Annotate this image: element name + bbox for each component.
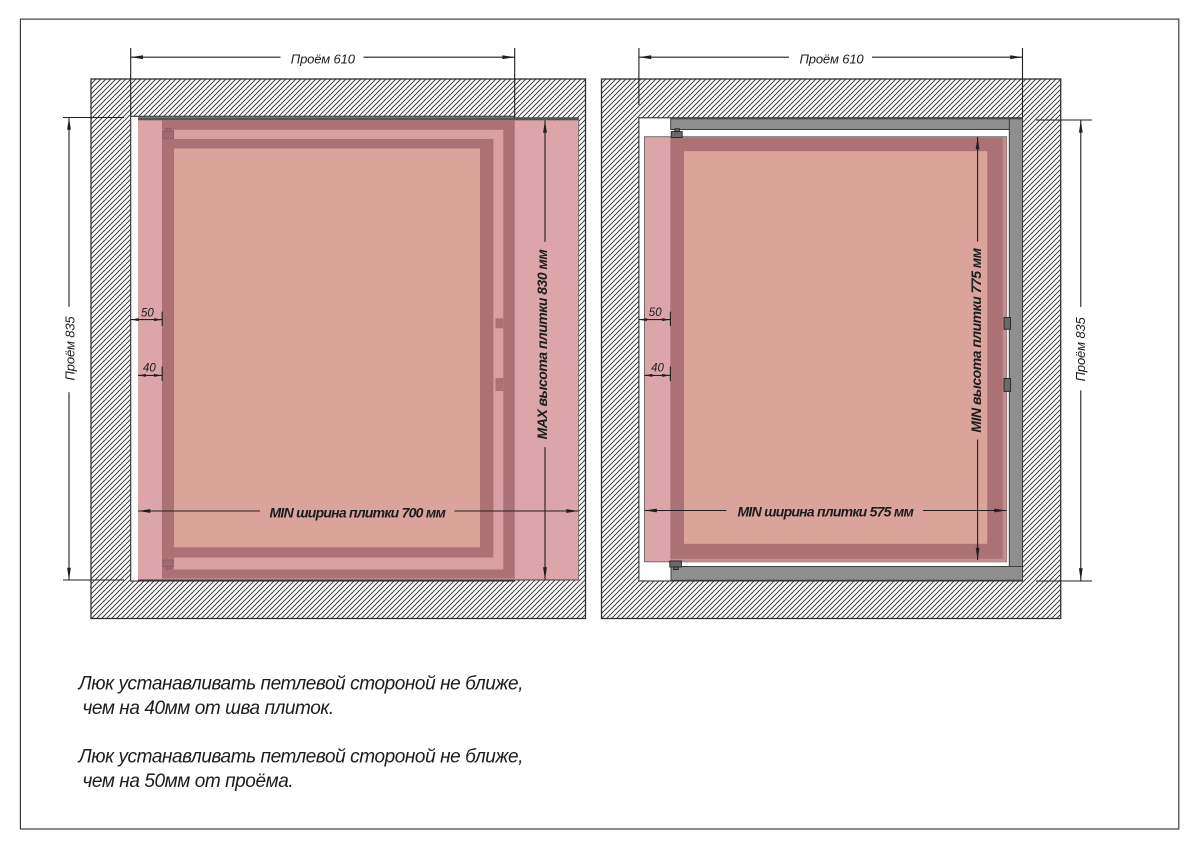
svg-text:MIN ширина плитки 700 мм: MIN ширина плитки 700 мм: [270, 504, 447, 520]
svg-text:Проём 835: Проём 835: [1073, 316, 1088, 381]
svg-text:MIN высота плитки 775 мм: MIN высота плитки 775 мм: [968, 247, 984, 432]
svg-text:50: 50: [649, 307, 662, 319]
svg-text:Люк устанавливать петлевой сто: Люк устанавливать петлевой стороной не б…: [77, 746, 523, 767]
svg-text:MAX высота плитки 830 мм: MAX высота плитки 830 мм: [534, 249, 550, 440]
svg-text:MIN ширина плитки 575 мм: MIN ширина плитки 575 мм: [738, 504, 915, 520]
svg-text:чем на 40мм от шва плиток.: чем на 40мм от шва плиток.: [83, 698, 334, 719]
svg-text:чем на 50мм от проёма.: чем на 50мм от проёма.: [83, 771, 294, 792]
svg-text:Проём 610: Проём 610: [800, 52, 865, 67]
svg-text:50: 50: [141, 308, 154, 320]
svg-text:Люк устанавливать петлевой сто: Люк устанавливать петлевой стороной не б…: [77, 674, 523, 695]
svg-text:Проём 610: Проём 610: [291, 52, 356, 67]
svg-text:40: 40: [651, 363, 664, 375]
svg-text:40: 40: [143, 363, 156, 375]
svg-text:Проём 835: Проём 835: [63, 316, 78, 381]
